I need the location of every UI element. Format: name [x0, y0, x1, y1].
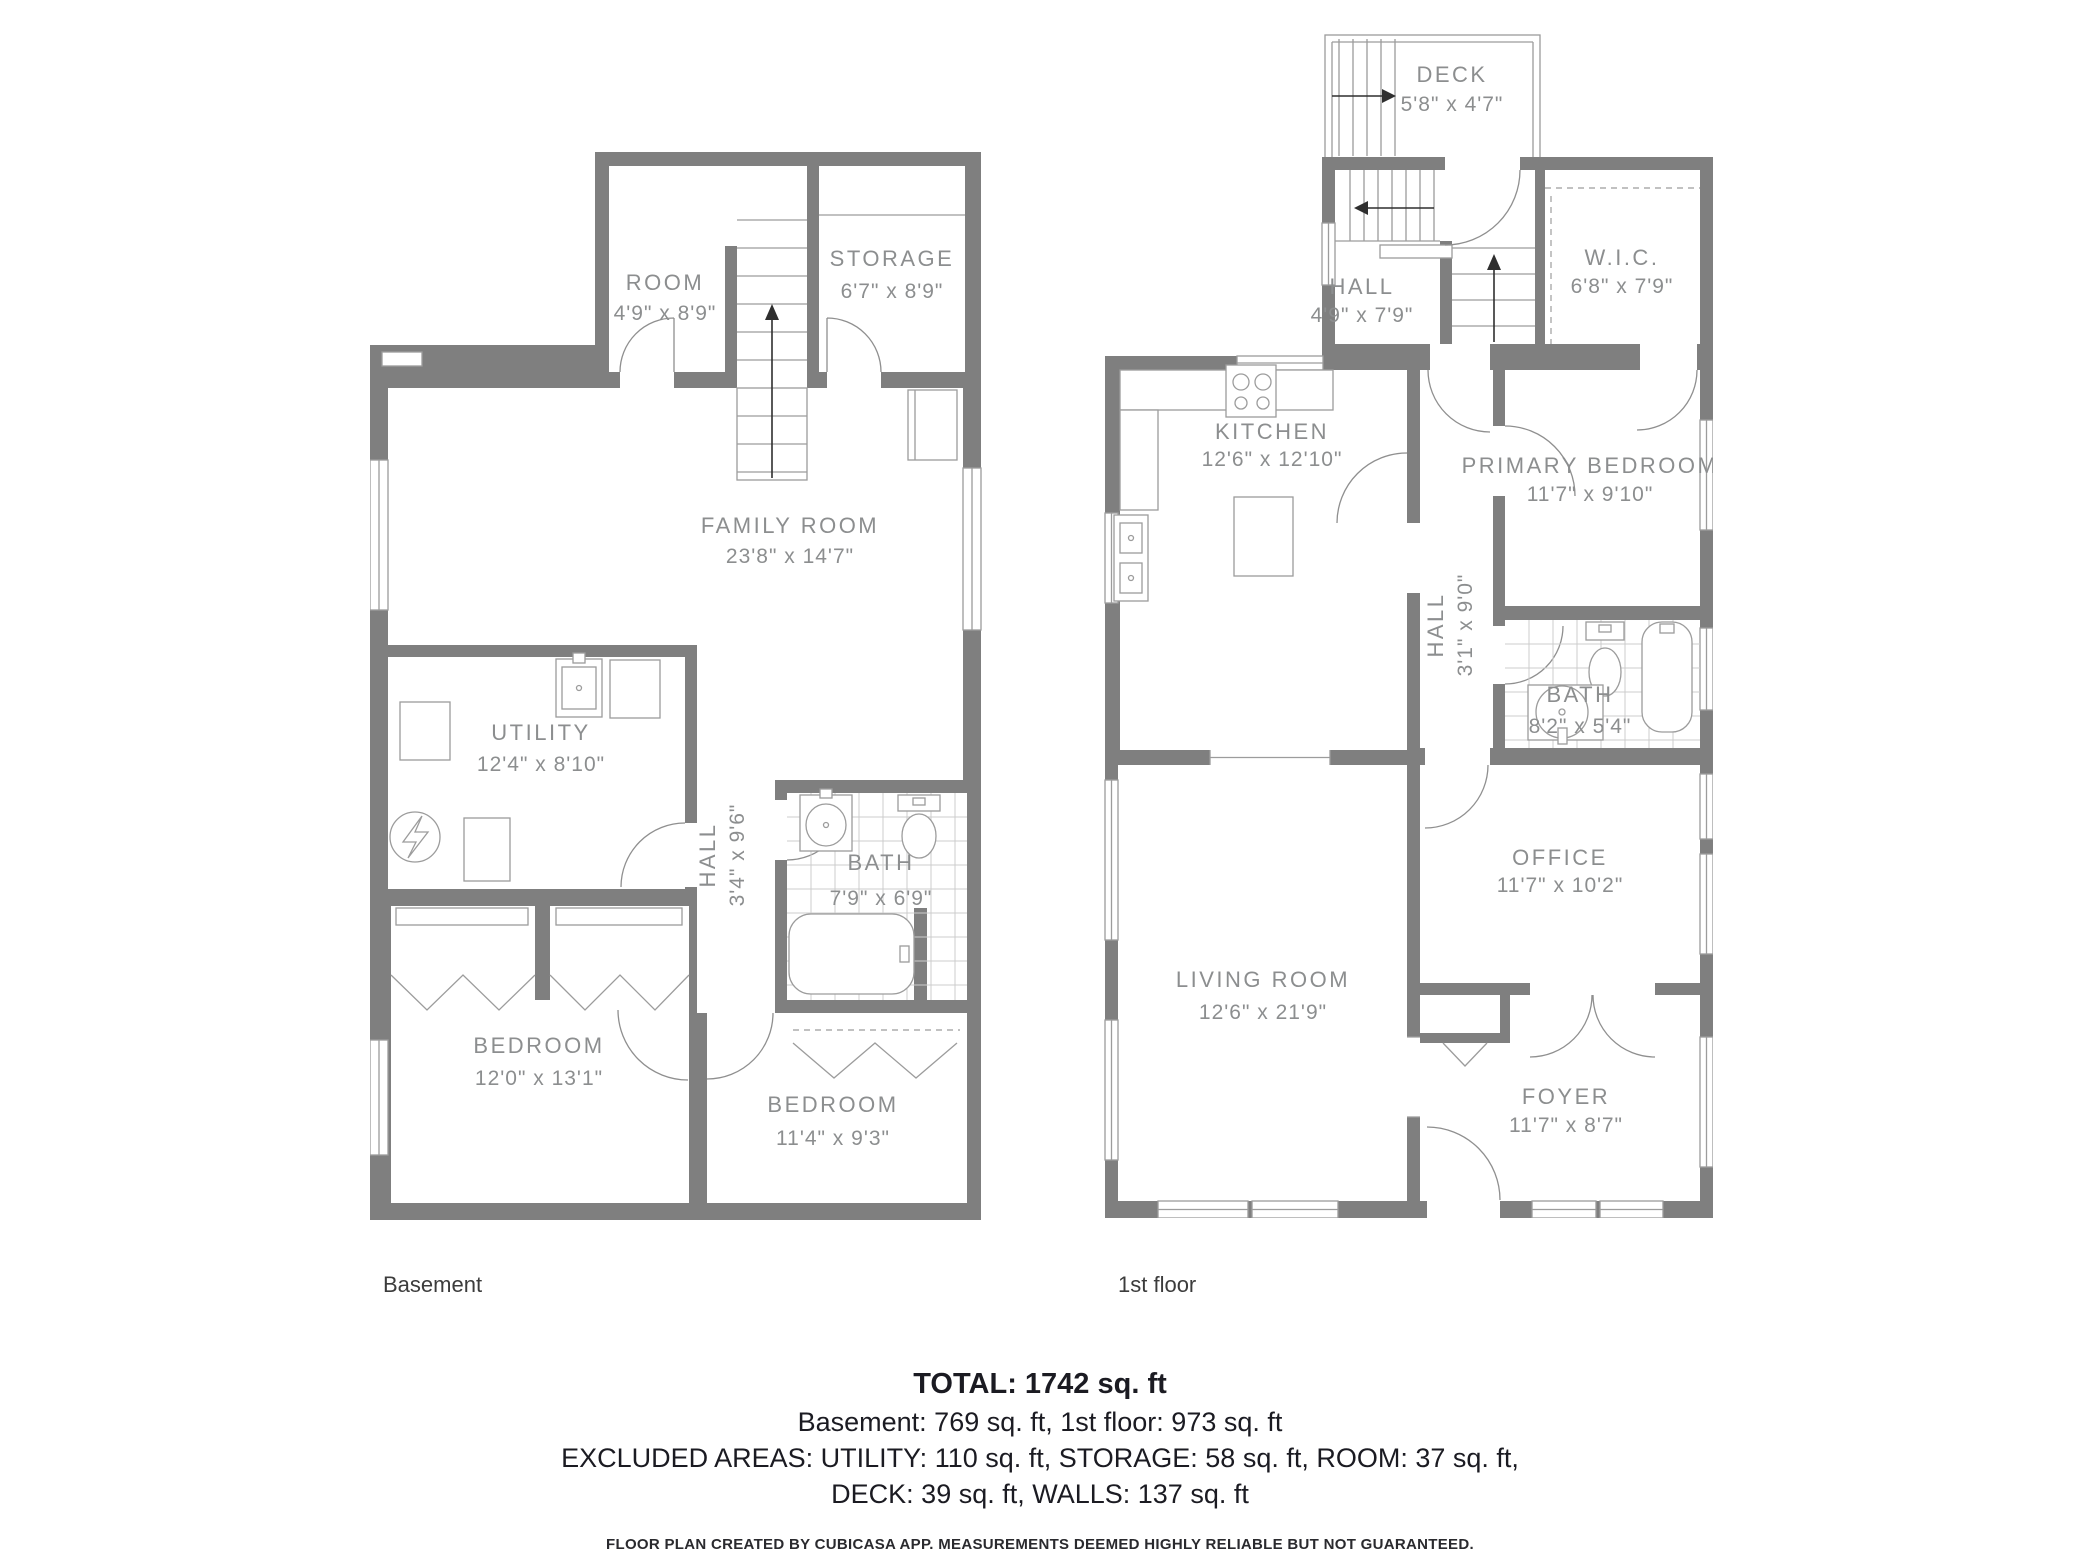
room-label-family: FAMILY ROOM — [701, 513, 879, 538]
first-floor-label: 1st floor — [1118, 1272, 1196, 1298]
kitchen-hall-opening — [1407, 523, 1420, 593]
summary-footer: TOTAL: 1742 sq. ft Basement: 769 sq. ft,… — [0, 1368, 2080, 1553]
french-door-gap — [1530, 983, 1655, 995]
wic-bedroom-door-gap — [1640, 344, 1697, 370]
total-area-line: TOTAL: 1742 sq. ft — [0, 1368, 2080, 1401]
room-dims-wic: 6'8" x 7'9" — [1571, 275, 1674, 298]
stairs-main-door-gap — [1430, 344, 1490, 370]
bath-door-gap — [775, 800, 787, 860]
room-label-office: OFFICE — [1512, 845, 1608, 870]
closet-divider-wall — [535, 906, 550, 1000]
room-label-hall: HALL — [1423, 592, 1448, 657]
room-dims-family: 23'8" x 14'7" — [726, 545, 854, 568]
faucet-icon — [820, 789, 832, 798]
room-label-hall-upper: HALL — [1329, 274, 1394, 299]
room-dims-bedroom1: 12'0" x 13'1" — [475, 1067, 603, 1090]
tub-faucet-icon — [1660, 624, 1674, 633]
room-label-bedroom1: BEDROOM — [473, 1033, 604, 1058]
window — [370, 460, 388, 610]
room-label-hall: HALL — [695, 822, 720, 887]
window — [1700, 854, 1713, 954]
bedroom1-interior — [391, 1000, 689, 1203]
sink-basin — [1120, 523, 1142, 553]
room-label-wic: W.I.C. — [1585, 245, 1660, 270]
room-label-primary: PRIMARY BEDROOM — [1462, 453, 1713, 478]
bathtub-icon — [789, 914, 914, 994]
room-dims-hall: 3'4" x 9'6" — [726, 804, 749, 907]
room-dims-deck: 5'8" x 4'7" — [1401, 93, 1504, 116]
first-floor-plan: DECK 5'8" x 4'7" HALL 4'9" x 7'9" W.I.C.… — [1100, 26, 1713, 1218]
stair-landing-rail — [1380, 245, 1452, 258]
front-door-gap — [1427, 1201, 1500, 1218]
appliance-box — [464, 818, 510, 881]
deck-door-gap — [1445, 157, 1520, 170]
room-label-kitchen: KITCHEN — [1215, 419, 1329, 444]
room-door-gap — [620, 372, 674, 388]
toilet-button — [913, 798, 925, 805]
room-label-utility: UTILITY — [491, 720, 590, 745]
room-dims-storage: 6'7" x 8'9" — [841, 280, 944, 303]
window — [1700, 774, 1713, 839]
bathtub-icon — [1642, 622, 1692, 732]
faucet-icon — [573, 653, 585, 663]
foyer-closet-interior — [1420, 995, 1500, 1033]
room-dims-foyer: 11'7" x 8'7" — [1509, 1114, 1623, 1137]
window — [1105, 1020, 1118, 1160]
window — [1532, 1201, 1596, 1218]
room-label-bedroom2: BEDROOM — [767, 1092, 898, 1117]
window — [1600, 1201, 1663, 1218]
window — [370, 1040, 388, 1155]
room-label-deck: DECK — [1416, 62, 1487, 87]
appliance-box — [610, 660, 660, 718]
window — [1700, 628, 1713, 710]
floor-areas-line: Basement: 769 sq. ft, 1st floor: 973 sq.… — [0, 1407, 2080, 1438]
room-label-room: ROOM — [626, 270, 704, 295]
closet-header — [396, 908, 528, 925]
wall-recess — [382, 352, 422, 366]
landing-opening — [1440, 170, 1452, 241]
sink-icon — [806, 804, 846, 846]
room-interior — [609, 166, 725, 372]
office-door-gap — [1425, 748, 1490, 765]
room-dims-bedroom2: 11'4" x 9'3" — [776, 1127, 890, 1150]
storage-door-gap — [827, 372, 881, 388]
stove-icon — [1226, 365, 1276, 417]
window — [1105, 780, 1118, 940]
room-dims-bath: 7'9" x 6'9" — [830, 887, 933, 910]
room-dims-room: 4'9" x 8'9" — [614, 302, 717, 325]
room-label-bath: BATH — [847, 850, 914, 875]
room-dims-primary: 11'7" x 9'10" — [1527, 483, 1654, 506]
room-dims-office: 11'7" x 10'2" — [1497, 874, 1624, 897]
room-top-opening — [725, 166, 737, 246]
room-dims-utility: 12'4" x 8'10" — [477, 753, 605, 776]
bath-door-gap — [1493, 626, 1505, 684]
room-dims-hall: 3'1" x 9'0" — [1454, 574, 1477, 677]
room-label-storage: STORAGE — [830, 246, 955, 271]
tub-faucet-icon — [900, 946, 909, 962]
appliance-box — [400, 702, 450, 760]
living-foyer-opening — [1407, 1037, 1420, 1117]
kitchen-counter-left — [1120, 410, 1158, 510]
room-label-living: LIVING ROOM — [1176, 967, 1350, 992]
room-label-foyer: FOYER — [1522, 1084, 1610, 1109]
tub-alcove-wall — [914, 908, 927, 1000]
kitchen-island — [1234, 497, 1293, 576]
window — [963, 468, 981, 630]
room-dims-hall-upper: 4'9" x 7'9" — [1311, 304, 1414, 327]
toilet-button — [1599, 625, 1611, 632]
excluded-areas-line1: EXCLUDED AREAS: UTILITY: 110 sq. ft, STO… — [0, 1443, 2080, 1474]
window — [1252, 1201, 1338, 1218]
basement-plan: ROOM 4'9" x 8'9" STORAGE 6'7" x 8'9" FAM… — [370, 148, 985, 1220]
basement-floor-label: Basement — [383, 1272, 482, 1298]
room-dims-living: 12'6" x 21'9" — [1199, 1001, 1327, 1024]
room-label-bath: BATH — [1546, 682, 1613, 707]
closet-header — [556, 908, 682, 925]
sink-basin — [1120, 563, 1142, 593]
hall-interior — [1420, 370, 1493, 748]
window — [1700, 1037, 1713, 1167]
room-dims-kitchen: 12'6" x 12'10" — [1202, 448, 1343, 471]
excluded-areas-line2: DECK: 39 sq. ft, WALLS: 137 sq. ft — [0, 1479, 2080, 1510]
floorplan-page: ROOM 4'9" x 8'9" STORAGE 6'7" x 8'9" FAM… — [0, 0, 2080, 1560]
electrical-panel-icon — [390, 812, 440, 862]
utility-sink-basin — [562, 667, 596, 709]
disclaimer-line: FLOOR PLAN CREATED BY CUBICASA APP. MEAS… — [0, 1536, 2080, 1553]
window — [1158, 1201, 1248, 1218]
room-dims-bath: 8'2" x 5'4" — [1529, 715, 1632, 738]
